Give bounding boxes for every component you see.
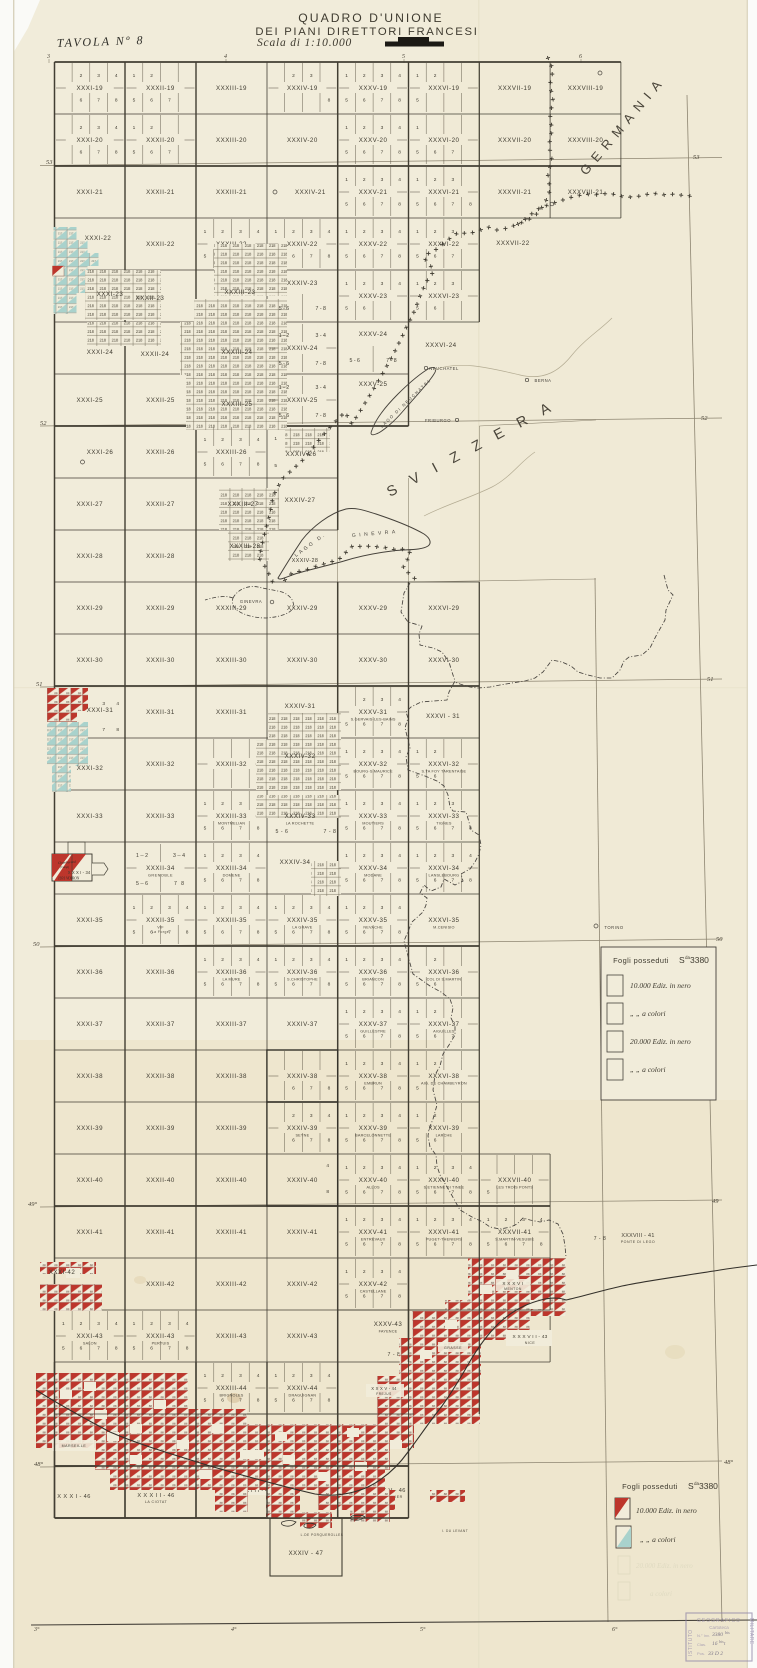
svg-text:XXXII-33: XXXII-33 [146, 813, 175, 820]
svg-text:XXXIII-38: XXXIII-38 [216, 1073, 247, 1080]
svg-text:PONTE DI LEGO: PONTE DI LEGO [621, 1240, 655, 1244]
svg-text:1: 1 [416, 1217, 419, 1223]
svg-text:5: 5 [345, 1086, 348, 1092]
svg-text:3: 3 [381, 177, 384, 183]
svg-text:4: 4 [398, 1061, 401, 1067]
svg-text:6: 6 [363, 1086, 366, 1092]
svg-text:XXXII-25: XXXII-25 [146, 397, 175, 404]
svg-text:MARSEILLE: MARSEILLE [62, 1444, 87, 1448]
svg-text:S.CHRISTOPHE: S.CHRISTOPHE [287, 978, 318, 982]
svg-text:8: 8 [398, 1294, 401, 1300]
svg-text:3 -- 4: 3 -- 4 [173, 853, 185, 859]
svg-text:XXXII-39: XXXII-39 [146, 1125, 175, 1132]
svg-text:2: 2 [363, 1009, 366, 1015]
svg-text:6: 6 [434, 774, 437, 780]
svg-text:QUADRO D'UNIONE: QUADRO D'UNIONE [298, 11, 443, 25]
svg-text:7: 7 [239, 930, 242, 936]
svg-text:XXXIV-20: XXXIV-20 [287, 137, 318, 144]
svg-text:4: 4 [186, 905, 189, 911]
svg-text:2: 2 [434, 1165, 437, 1171]
svg-text:2: 2 [292, 905, 295, 911]
svg-text:1: 1 [274, 957, 277, 963]
svg-text:2: 2 [221, 229, 224, 235]
svg-text:X X X I I - 46: X X X I I - 46 [137, 1493, 174, 1499]
svg-text:5: 5 [345, 202, 348, 208]
svg-text:MONTMELIAN: MONTMELIAN [218, 822, 245, 826]
svg-text:6: 6 [434, 878, 437, 884]
svg-text:PERTUIS: PERTUIS [152, 1342, 170, 1346]
svg-text:5: 5 [416, 826, 419, 832]
svg-text:BERNA: BERNA [535, 378, 552, 383]
svg-text:XXXIV-21: XXXIV-21 [295, 189, 326, 196]
svg-text:3380: 3380 [690, 955, 709, 965]
svg-text:7: 7 [381, 1138, 384, 1144]
svg-text:4: 4 [116, 701, 119, 707]
svg-text:6: 6 [434, 1242, 437, 1248]
svg-text:3 - 4: 3 - 4 [316, 385, 326, 391]
svg-text:XXXVII-40: XXXVII-40 [498, 1177, 531, 1184]
svg-text:XXXII-19: XXXII-19 [146, 85, 175, 92]
svg-text:BRIGNOLES: BRIGNOLES [220, 1394, 244, 1398]
svg-text:XXXI-33: XXXI-33 [77, 813, 104, 820]
svg-text:1: 1 [204, 905, 207, 911]
svg-text:S.ETIENNE DI TINEE: S.ETIENNE DI TINEE [424, 1186, 465, 1190]
svg-text:NICE: NICE [525, 1341, 536, 1345]
svg-text:XXXII-21: XXXII-21 [146, 189, 175, 196]
svg-text:8: 8 [115, 150, 118, 156]
svg-text:8: 8 [186, 1346, 189, 1352]
svg-text:7: 7 [239, 982, 242, 988]
svg-text:5: 5 [416, 1242, 419, 1248]
svg-text:1: 1 [204, 801, 207, 807]
svg-text:3: 3 [310, 229, 313, 235]
svg-text:7: 7 [451, 826, 454, 832]
svg-text:8: 8 [398, 202, 401, 208]
svg-text:1: 1 [416, 73, 419, 79]
svg-text:4: 4 [115, 125, 118, 131]
svg-text:4: 4 [257, 437, 260, 443]
svg-text:I. DU LEVANT: I. DU LEVANT [442, 1529, 468, 1533]
svg-text:8: 8 [328, 1086, 331, 1092]
svg-text:FREJUS: FREJUS [376, 1392, 391, 1396]
svg-text:5: 5 [204, 1398, 207, 1404]
svg-text:XXXVII-41: XXXVII-41 [498, 1229, 531, 1236]
svg-text:XXXIV-38: XXXIV-38 [287, 1073, 318, 1080]
svg-text:3: 3 [239, 437, 242, 443]
svg-text:8: 8 [469, 1242, 472, 1248]
svg-text:4: 4 [257, 905, 260, 911]
svg-text:7: 7 [381, 1034, 384, 1040]
svg-text:4: 4 [257, 853, 260, 859]
svg-text:3: 3 [381, 1269, 384, 1275]
svg-text:3: 3 [381, 1113, 384, 1119]
svg-text:6: 6 [80, 98, 83, 104]
svg-text:5: 5 [204, 826, 207, 832]
svg-text:5: 5 [487, 1190, 490, 1196]
svg-text:3: 3 [239, 905, 242, 911]
svg-text:10.000 Ediz. in nero: 10.000 Ediz. in nero [630, 981, 691, 990]
svg-text:XXXVI-29: XXXVI-29 [428, 605, 459, 612]
svg-text:2: 2 [434, 1061, 437, 1067]
svg-text:7: 7 [381, 930, 384, 936]
svg-text:5: 5 [345, 930, 348, 936]
svg-text:4: 4 [469, 1165, 472, 1171]
svg-text:LA CIOTAT: LA CIOTAT [145, 1500, 168, 1504]
svg-text:4: 4 [257, 229, 260, 235]
svg-text:a colori: a colori [650, 1590, 672, 1598]
svg-text:3: 3 [381, 125, 384, 131]
svg-text:3: 3 [451, 281, 454, 287]
svg-text:2: 2 [221, 1373, 224, 1379]
svg-text:7: 7 [310, 930, 313, 936]
svg-text:7 8: 7 8 [174, 881, 184, 887]
svg-text:5: 5 [345, 982, 348, 988]
svg-text:2: 2 [292, 229, 295, 235]
svg-text:5: 5 [416, 1138, 419, 1144]
svg-text:XXXI-38: XXXI-38 [77, 1073, 104, 1080]
svg-text:7: 7 [168, 1346, 171, 1352]
svg-text:8: 8 [326, 1189, 329, 1195]
svg-text:3: 3 [102, 701, 105, 707]
svg-text:XXXIII-23: XXXIII-23 [225, 289, 256, 296]
svg-text:4: 4 [398, 1009, 401, 1015]
svg-text:XXXIV-22: XXXIV-22 [287, 241, 318, 248]
svg-text:2: 2 [221, 853, 224, 859]
svg-text:2: 2 [292, 1113, 295, 1119]
svg-text:1: 1 [274, 436, 277, 442]
svg-text:XXXV-35: XXXV-35 [359, 917, 388, 924]
svg-text:XXXIII-20: XXXIII-20 [216, 137, 247, 144]
svg-text:XXXIV-33: XXXIV-33 [285, 813, 316, 820]
svg-text:Scala di 1:10.000: Scala di 1:10.000 [257, 37, 352, 49]
svg-text:2: 2 [292, 957, 295, 963]
svg-text:„ „ a colori: „ „ a colori [630, 1009, 666, 1018]
svg-text:1: 1 [345, 1269, 348, 1275]
svg-text:1: 1 [345, 73, 348, 79]
svg-text:TORINO: TORINO [604, 925, 623, 930]
svg-text:6: 6 [80, 1346, 83, 1352]
svg-text:XXXVIII - 41: XXXVIII - 41 [621, 1233, 654, 1239]
svg-text:2: 2 [80, 1321, 83, 1327]
svg-text:XXXIV-41: XXXIV-41 [287, 1229, 318, 1236]
svg-text:4: 4 [257, 1373, 260, 1379]
svg-text:5: 5 [274, 982, 277, 988]
svg-text:8: 8 [398, 98, 401, 104]
svg-text:XXXVI-41: XXXVI-41 [428, 1229, 459, 1236]
svg-text:5: 5 [416, 150, 419, 156]
svg-text:7 - 8: 7 - 8 [594, 1236, 607, 1242]
svg-text:XXXV-33: XXXV-33 [359, 813, 388, 820]
svg-text:1: 1 [345, 1061, 348, 1067]
svg-text:4: 4 [398, 697, 401, 703]
svg-text:3: 3 [239, 229, 242, 235]
svg-text:3: 3 [381, 801, 384, 807]
svg-text:XXXII-24: XXXII-24 [141, 351, 170, 358]
svg-text:8: 8 [257, 878, 260, 884]
svg-text:5: 5 [345, 150, 348, 156]
svg-text:3: 3 [451, 801, 454, 807]
svg-text:XXXII-26: XXXII-26 [146, 449, 175, 456]
svg-text:6: 6 [150, 1346, 153, 1352]
svg-text:MENTON: MENTON [504, 1287, 522, 1291]
svg-text:2: 2 [363, 1113, 366, 1119]
svg-text:7 - 8: 7 - 8 [324, 829, 337, 835]
svg-text:5: 5 [345, 826, 348, 832]
svg-text:8: 8 [398, 982, 401, 988]
svg-text:7: 7 [381, 1242, 384, 1248]
svg-text:3: 3 [381, 697, 384, 703]
svg-text:S.GERVAIS-LES-BAINS: S.GERVAIS-LES-BAINS [351, 718, 396, 722]
svg-text:1: 1 [345, 957, 348, 963]
svg-text:7 - 8: 7 - 8 [388, 1352, 401, 1358]
svg-text:6: 6 [363, 254, 366, 260]
svg-text:XXXV-31: XXXV-31 [359, 709, 388, 716]
svg-text:6: 6 [363, 1242, 366, 1248]
svg-text:1: 1 [345, 177, 348, 183]
svg-text:XXXIV-19: XXXIV-19 [287, 85, 318, 92]
svg-text:XXXI-32: XXXI-32 [77, 765, 104, 772]
svg-text:4: 4 [115, 1321, 118, 1327]
svg-text:8: 8 [398, 254, 401, 260]
svg-text:1: 1 [204, 1373, 207, 1379]
svg-text:XXXII-41: XXXII-41 [146, 1229, 175, 1236]
svg-text:6: 6 [434, 1190, 437, 1196]
svg-text:2: 2 [221, 905, 224, 911]
svg-text:6: 6 [363, 930, 366, 936]
svg-text:7: 7 [381, 150, 384, 156]
svg-text:2: 2 [434, 1009, 437, 1015]
svg-text:XXXII-27: XXXII-27 [146, 501, 175, 508]
svg-text:1: 1 [204, 853, 207, 859]
svg-text:8: 8 [398, 1034, 401, 1040]
svg-text:7: 7 [97, 150, 100, 156]
svg-text:3: 3 [381, 853, 384, 859]
svg-text:7: 7 [381, 774, 384, 780]
svg-text:5: 5 [204, 930, 207, 936]
svg-text:1: 1 [204, 957, 207, 963]
svg-text:5: 5 [345, 254, 348, 260]
svg-text:XXXVI - 31: XXXVI - 31 [426, 714, 460, 720]
svg-text:„ „ a colori: „ „ a colori [630, 1065, 666, 1074]
svg-text:1: 1 [345, 801, 348, 807]
svg-text:XXXIII-30: XXXIII-30 [216, 657, 247, 664]
svg-text:XXXV-36: XXXV-36 [359, 969, 388, 976]
svg-text:7: 7 [451, 254, 454, 260]
svg-text:7: 7 [381, 722, 384, 728]
svg-text:8: 8 [398, 826, 401, 832]
svg-text:2: 2 [505, 1217, 508, 1223]
svg-text:3: 3 [381, 749, 384, 755]
svg-text:6: 6 [221, 878, 224, 884]
svg-text:XXXII-36: XXXII-36 [146, 969, 175, 976]
svg-text:7: 7 [97, 1346, 100, 1352]
svg-text:53: 53 [693, 154, 700, 161]
svg-text:DRAGUIGNAN: DRAGUIGNAN [289, 1394, 317, 1398]
svg-text:3: 3 [381, 957, 384, 963]
svg-text:XXXV-43: XXXV-43 [374, 1321, 403, 1328]
svg-text:XXXVII-19: XXXVII-19 [498, 85, 531, 92]
svg-text:XXXVI-34: XXXVI-34 [428, 865, 459, 872]
svg-text:48°: 48° [34, 1461, 44, 1468]
svg-text:8: 8 [328, 1138, 331, 1144]
svg-text:3: 3 [451, 853, 454, 859]
svg-text:4: 4 [186, 1321, 189, 1327]
svg-text:2: 2 [434, 853, 437, 859]
svg-text:8: 8 [257, 930, 260, 936]
svg-text:XXXV-41: XXXV-41 [359, 1229, 388, 1236]
svg-text:3: 3 [97, 73, 100, 79]
svg-text:XXXVI-19: XXXVI-19 [428, 85, 459, 92]
svg-text:4: 4 [257, 957, 260, 963]
svg-text:6: 6 [363, 722, 366, 728]
svg-text:3: 3 [97, 1321, 100, 1327]
svg-text:2: 2 [80, 125, 83, 131]
svg-text:AIGUILLES: AIGUILLES [433, 1030, 455, 1034]
svg-text:20.000 Ediz. in nero: 20.000 Ediz. in nero [630, 1037, 691, 1046]
svg-text:20.000 Ediz. in nero: 20.000 Ediz. in nero [636, 1562, 693, 1570]
svg-text:3: 3 [451, 229, 454, 235]
svg-text:1: 1 [487, 1217, 490, 1223]
svg-text:LA ROCHETTE: LA ROCHETTE [286, 822, 315, 826]
svg-text:2: 2 [150, 73, 153, 79]
svg-text:7: 7 [239, 1398, 242, 1404]
svg-text:XXXV-21: XXXV-21 [359, 189, 388, 196]
svg-text:6: 6 [434, 1034, 437, 1040]
svg-text:1: 1 [62, 1321, 65, 1327]
svg-text:XXXII-38: XXXII-38 [146, 1073, 175, 1080]
svg-text:1931 VOIRON: 1931 VOIRON [58, 877, 80, 881]
svg-text:XXXII-23: XXXII-23 [136, 295, 165, 302]
svg-text:4: 4 [328, 1373, 331, 1379]
svg-text:2: 2 [363, 1061, 366, 1067]
svg-text:2: 2 [150, 905, 153, 911]
svg-text:XXXIV-39: XXXIV-39 [287, 1125, 318, 1132]
svg-text:6: 6 [434, 982, 437, 988]
svg-text:S.MARTIN-VESUBIE: S.MARTIN-VESUBIE [495, 1238, 534, 1242]
svg-text:XXXV-40: XXXV-40 [359, 1177, 388, 1184]
svg-text:XXXIII-26: XXXIII-26 [216, 449, 247, 456]
svg-text:X X X V - 44: X X X V - 44 [371, 1386, 397, 1391]
svg-text:3380: 3380 [699, 1481, 718, 1491]
svg-text:6: 6 [221, 982, 224, 988]
svg-text:MILITARE: MILITARE [748, 1618, 754, 1645]
svg-text:3: 3 [168, 905, 171, 911]
svg-text:XXXII-34: XXXII-34 [146, 865, 175, 872]
svg-text:5: 5 [274, 463, 277, 469]
svg-text:3: 3 [381, 73, 384, 79]
svg-text:4: 4 [398, 1217, 401, 1223]
svg-text:7: 7 [381, 982, 384, 988]
svg-text:bis: bis [725, 1630, 730, 1635]
svg-text:XXXV-32: XXXV-32 [359, 761, 388, 768]
svg-text:5: 5 [204, 462, 207, 468]
svg-text:1 -- 2: 1 -- 2 [136, 853, 148, 859]
svg-text:6: 6 [505, 1242, 508, 1248]
svg-text:6: 6 [150, 98, 153, 104]
svg-text:5: 5 [62, 1346, 65, 1352]
svg-text:S.TA FOY TARENTAISE: S.TA FOY TARENTAISE [421, 770, 466, 774]
svg-text:3: 3 [381, 281, 384, 287]
svg-text:3: 3 [97, 125, 100, 131]
svg-text:4: 4 [398, 281, 401, 287]
svg-text:GRENOBLE: GRENOBLE [148, 874, 173, 878]
svg-text:SALON: SALON [83, 1342, 97, 1346]
svg-text:5: 5 [416, 306, 419, 312]
svg-text:XXXIII-28: XXXIII-28 [230, 543, 261, 550]
svg-text:5: 5 [274, 1398, 277, 1404]
svg-text:6: 6 [434, 254, 437, 260]
svg-text:XXXVI-21: XXXVI-21 [428, 189, 459, 196]
svg-text:8: 8 [469, 878, 472, 884]
svg-text:1: 1 [133, 905, 136, 911]
svg-text:5 - 6: 5 - 6 [276, 829, 289, 835]
svg-text:XXXV-30: XXXV-30 [359, 657, 388, 664]
svg-text:8: 8 [328, 982, 331, 988]
svg-text:N.° Inv.: N.° Inv. [697, 1633, 710, 1638]
svg-text:2: 2 [434, 1217, 437, 1223]
svg-text:XXXIII-21: XXXIII-21 [216, 189, 247, 196]
svg-text:BOURG-S.MAURICE: BOURG-S.MAURICE [353, 770, 393, 774]
svg-text:5 - 6: 5 - 6 [350, 358, 360, 364]
svg-text:XXXII-22: XXXII-22 [146, 241, 175, 248]
svg-text:5: 5 [416, 1190, 419, 1196]
svg-text:XXXII-32: XXXII-32 [146, 761, 175, 768]
svg-text:33 D 2: 33 D 2 [707, 1651, 723, 1657]
svg-text:3: 3 [451, 1217, 454, 1223]
svg-text:2: 2 [292, 73, 295, 79]
svg-text:5: 5 [416, 1086, 419, 1092]
svg-text:7: 7 [97, 98, 100, 104]
svg-text:AIG. DE CHAMBEYRON: AIG. DE CHAMBEYRON [421, 1082, 467, 1086]
svg-text:SEYNE: SEYNE [295, 1134, 309, 1138]
svg-text:4: 4 [328, 905, 331, 911]
svg-text:3: 3 [239, 853, 242, 859]
svg-text:XXXII-40: XXXII-40 [146, 1177, 175, 1184]
svg-text:XXXIV-29: XXXIV-29 [287, 605, 318, 612]
svg-text:5: 5 [345, 98, 348, 104]
svg-text:8: 8 [398, 878, 401, 884]
svg-text:6: 6 [292, 1086, 295, 1092]
svg-text:1: 1 [204, 437, 207, 443]
svg-text:6: 6 [150, 150, 153, 156]
svg-text:XXXVI-39: XXXVI-39 [428, 1125, 459, 1132]
svg-text:2: 2 [221, 957, 224, 963]
svg-text:3°: 3° [33, 1626, 40, 1633]
svg-text:XXXIV-37: XXXIV-37 [287, 1021, 318, 1028]
svg-text:2: 2 [434, 801, 437, 807]
svg-text:5: 5 [204, 254, 207, 260]
svg-text:6: 6 [434, 306, 437, 312]
svg-text:1 - 2: 1 - 2 [279, 385, 289, 391]
svg-text:4: 4 [398, 853, 401, 859]
svg-text:XXXV-34: XXXV-34 [359, 865, 388, 872]
svg-text:2: 2 [434, 73, 437, 79]
svg-text:„ „ a colori: „ „ a colori [640, 1535, 676, 1544]
svg-text:4: 4 [224, 53, 227, 60]
svg-text:6: 6 [434, 826, 437, 832]
svg-text:8: 8 [257, 982, 260, 988]
svg-text:1: 1 [416, 125, 419, 131]
svg-text:16: 16 [712, 1641, 718, 1647]
svg-text:3: 3 [310, 1373, 313, 1379]
svg-text:GEOGRAFICO: GEOGRAFICO [697, 1618, 741, 1624]
svg-text:5: 5 [133, 98, 136, 104]
svg-text:7: 7 [168, 150, 171, 156]
svg-text:1: 1 [416, 1165, 419, 1171]
svg-text:8: 8 [328, 1398, 331, 1404]
svg-text:XXXIV-32: XXXIV-32 [285, 753, 316, 760]
svg-text:XXXIII-35: XXXIII-35 [216, 917, 247, 924]
